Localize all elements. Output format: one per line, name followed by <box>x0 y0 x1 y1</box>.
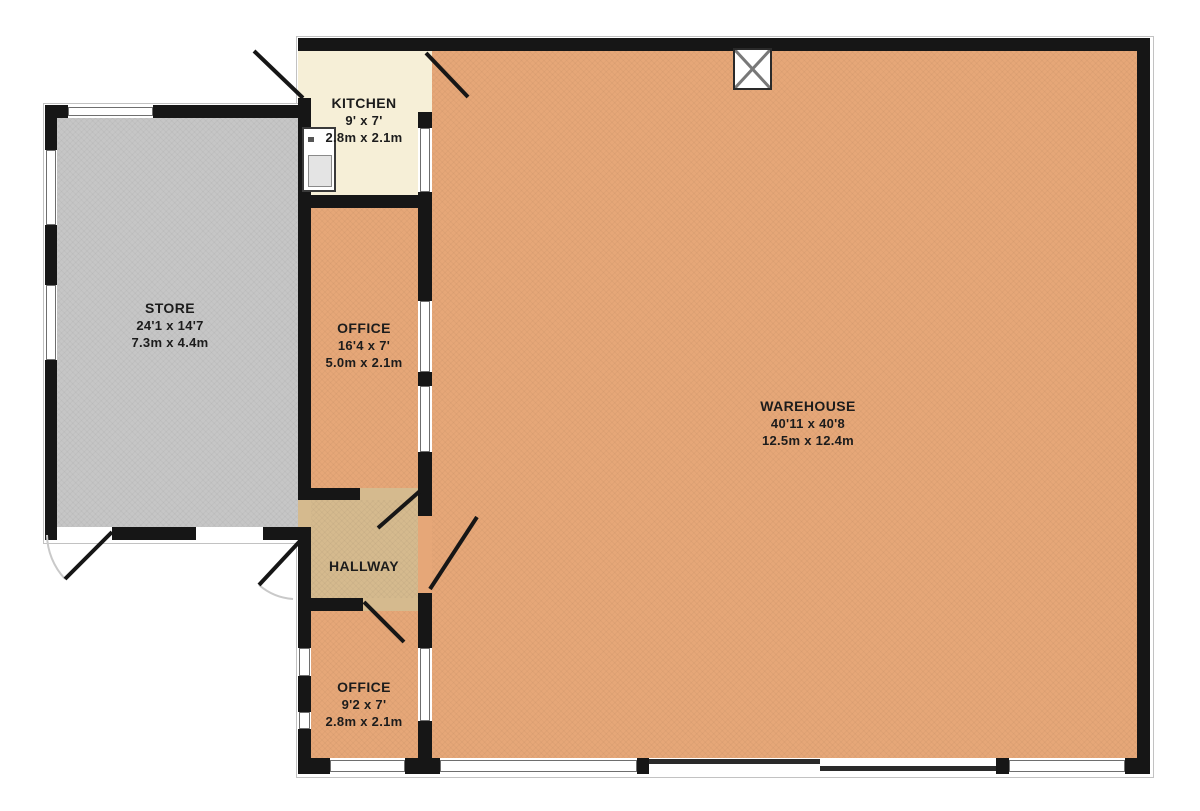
sink-bowl <box>308 155 332 187</box>
office-top-door-opening <box>360 488 418 500</box>
door-leaf <box>259 541 300 585</box>
hallway-floor <box>305 500 418 598</box>
wall-segment <box>112 527 196 540</box>
room-size-metric: 2.8m x 2.1m <box>298 713 430 730</box>
room-size-imperial: 40'11 x 40'8 <box>698 415 918 432</box>
window <box>420 386 430 452</box>
roof-vent-symbol <box>733 48 772 90</box>
room-size-metric: 2.8m x 2.1m <box>298 129 430 146</box>
window <box>330 760 405 772</box>
store-hallway-opening <box>298 500 311 527</box>
warehouse-label: WAREHOUSE 40'11 x 40'8 12.5m x 12.4m <box>698 398 918 449</box>
wall-segment <box>298 527 311 648</box>
room-size-metric: 7.3m x 4.4m <box>105 334 235 351</box>
wall-segment <box>418 452 432 516</box>
office-bottom-door-opening <box>363 598 418 611</box>
wall-segment <box>298 598 363 611</box>
sliding-door-panel <box>820 766 996 771</box>
room-name: OFFICE <box>298 320 430 337</box>
wall-segment <box>45 360 57 540</box>
wall-segment <box>418 372 432 386</box>
room-size-metric: 5.0m x 2.1m <box>298 354 430 371</box>
wall-segment <box>298 195 432 208</box>
wall-segment <box>45 105 57 150</box>
hallway-warehouse-door-opening <box>418 516 432 593</box>
window <box>46 285 56 360</box>
room-name: WAREHOUSE <box>698 398 918 415</box>
kitchen-exterior-door-opening <box>298 45 311 98</box>
wall-segment <box>45 225 57 285</box>
wall-segment <box>418 593 432 648</box>
office-top-label: OFFICE 16'4 x 7' 5.0m x 2.1m <box>298 320 430 371</box>
wall-segment <box>263 527 305 540</box>
window <box>68 107 153 116</box>
room-size-imperial: 16'4 x 7' <box>298 337 430 354</box>
floor-plan-canvas: STORE 24'1 x 14'7 7.3m x 4.4m KITCHEN 9'… <box>0 0 1200 811</box>
wall-segment <box>45 527 55 540</box>
wall-segment <box>1137 38 1150 774</box>
room-size-imperial: 24'1 x 14'7 <box>105 317 235 334</box>
window <box>1009 760 1125 772</box>
wall-segment <box>418 192 432 301</box>
room-name: KITCHEN <box>298 95 430 112</box>
room-name: STORE <box>105 300 235 317</box>
hallway-label: HALLWAY <box>298 558 430 575</box>
wall-segment <box>298 38 311 45</box>
room-size-metric: 12.5m x 12.4m <box>698 432 918 449</box>
room-size-imperial: 9'2 x 7' <box>298 696 430 713</box>
window <box>299 648 310 676</box>
store-label: STORE 24'1 x 14'7 7.3m x 4.4m <box>105 300 235 351</box>
sliding-door-panel <box>649 759 820 764</box>
wall-segment <box>298 38 1150 51</box>
door-swing-arc <box>259 585 293 599</box>
room-size-imperial: 9' x 7' <box>298 112 430 129</box>
window <box>440 760 637 772</box>
wall-segment <box>637 758 649 774</box>
room-name: OFFICE <box>298 679 430 696</box>
wall-segment <box>298 729 311 774</box>
window <box>46 150 56 225</box>
wall-segment <box>1125 758 1150 774</box>
crossed-box-icon <box>735 50 770 88</box>
kitchen-label: KITCHEN 9' x 7' 2.8m x 2.1m <box>298 95 430 146</box>
room-name: HALLWAY <box>298 558 430 575</box>
office-bottom-label: OFFICE 9'2 x 7' 2.8m x 2.1m <box>298 679 430 730</box>
wall-segment <box>996 758 1009 774</box>
wall-segment <box>298 488 360 500</box>
wall-segment <box>153 105 305 118</box>
